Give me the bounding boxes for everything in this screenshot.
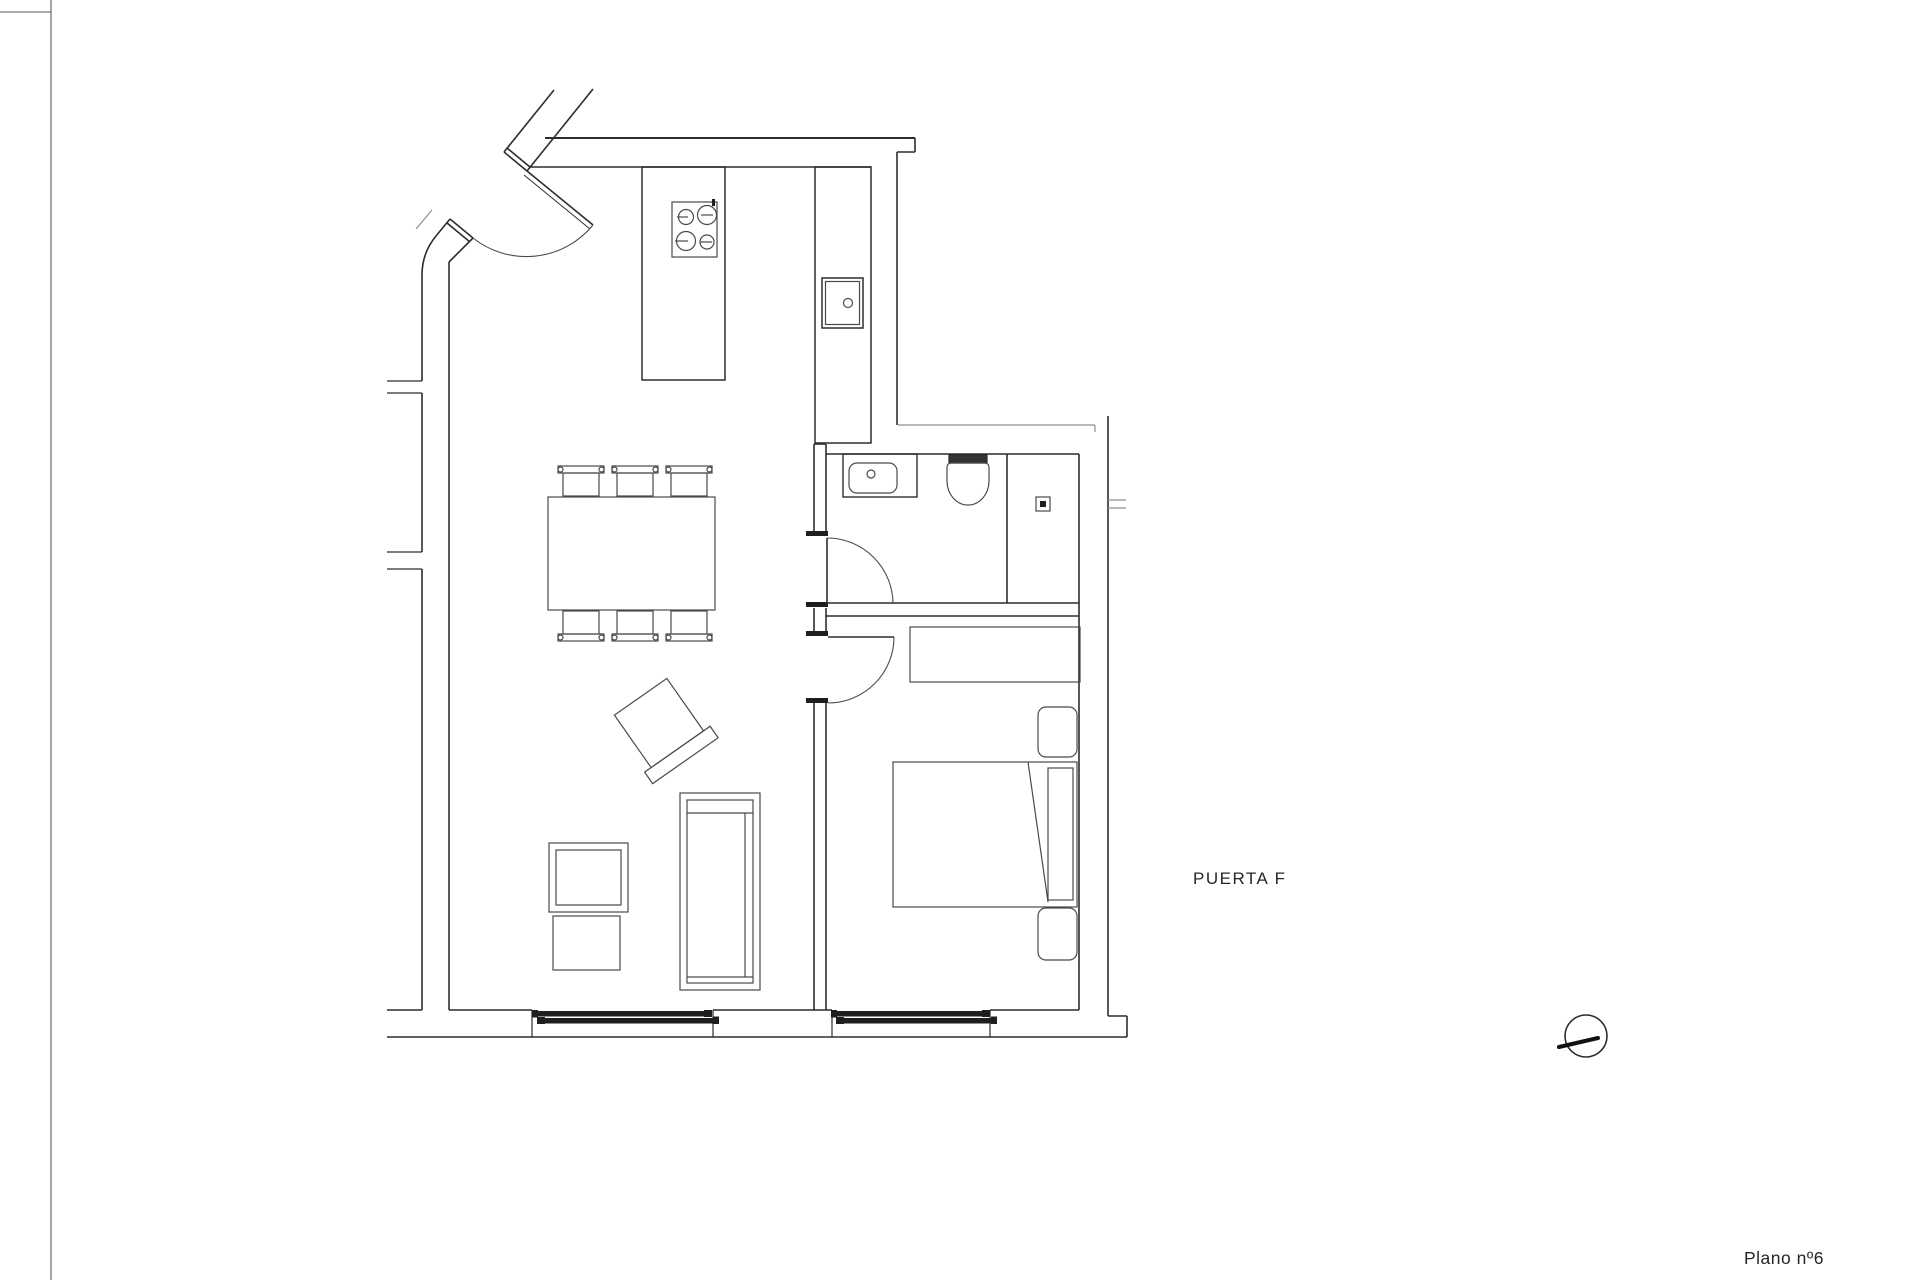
- bathroom-sink-icon: [843, 454, 917, 497]
- dining-table: [548, 497, 715, 610]
- chair: [558, 611, 604, 641]
- nightstand-bottom: [1038, 908, 1077, 960]
- floor-plan-drawing: [0, 0, 1920, 1280]
- kitchen-sink-icon: [822, 278, 863, 328]
- floor-plan-sheet: PUERTA F Plano nº6: [0, 0, 1920, 1280]
- bedroom: [893, 627, 1080, 960]
- bathroom-door: [827, 538, 893, 604]
- walls: [387, 89, 1127, 1037]
- sofa: [680, 793, 760, 990]
- chair: [612, 611, 658, 641]
- door-label: PUERTA F: [1193, 869, 1287, 889]
- plan-number-label: Plano nº6: [1744, 1248, 1824, 1269]
- chair: [666, 466, 712, 496]
- chair: [558, 466, 604, 496]
- chair: [612, 466, 658, 496]
- stove-icon: [672, 199, 717, 257]
- door-jamb-marks: [806, 531, 828, 703]
- nightstand-top: [1038, 707, 1077, 757]
- windows: [532, 1010, 997, 1024]
- bed: [893, 762, 1077, 907]
- shower-drain-icon: [1036, 497, 1050, 511]
- sheet-border: [0, 0, 51, 1280]
- clock-icon: [1559, 1015, 1607, 1057]
- toilet-icon: [947, 455, 989, 505]
- closet: [910, 627, 1080, 682]
- bedroom-door: [828, 637, 894, 703]
- armchair: [608, 674, 718, 784]
- tv-unit: [549, 843, 628, 970]
- bathroom: [843, 454, 1050, 511]
- living-room-window: [532, 1010, 719, 1024]
- chair: [666, 611, 712, 641]
- kitchen-island: [642, 167, 725, 380]
- dining-set: [548, 466, 715, 641]
- bedroom-window: [831, 1010, 997, 1024]
- kitchen-counter: [815, 167, 871, 443]
- entrance-door: [473, 171, 593, 257]
